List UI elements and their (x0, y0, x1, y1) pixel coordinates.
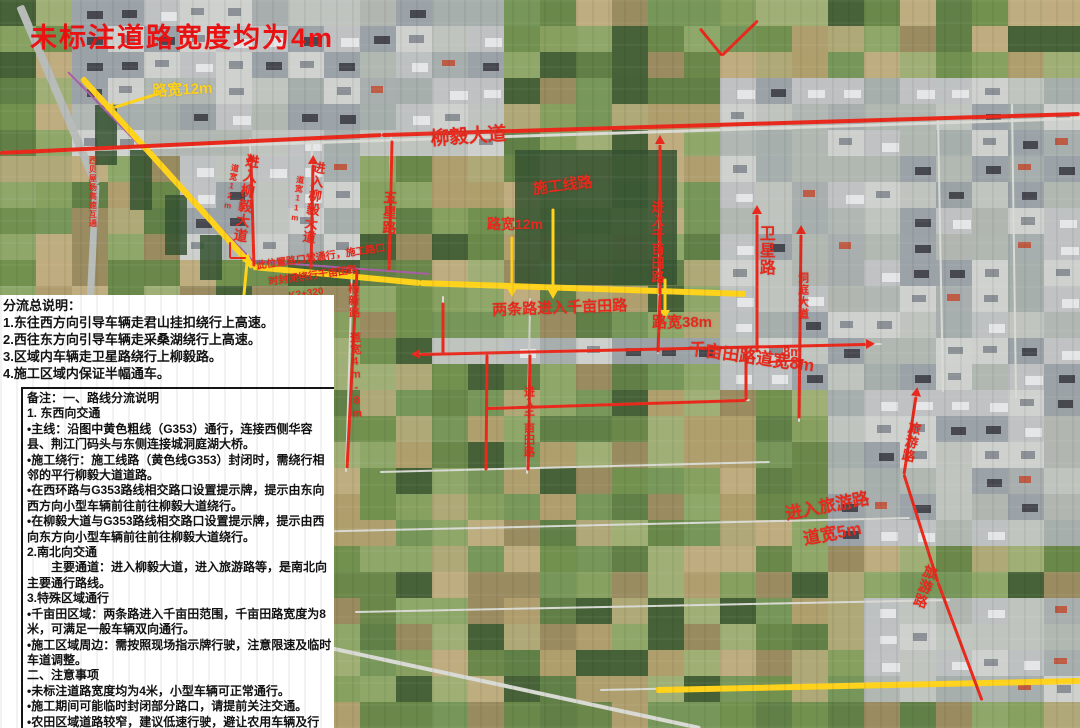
note-line: •未标注道路宽度均为4米，小型车辆可正常通行。 (27, 684, 334, 699)
notes-box: 备注：一、路线分流说明1. 东西向交通•主线：沿图中黄色粗线（G353）通行，连… (21, 387, 334, 728)
note-lines: 备注：一、路线分流说明1. 东西向交通•主线：沿图中黄色粗线（G353）通行，连… (27, 391, 334, 728)
summary-line: 4.施工区域内保证半幅通车。 (3, 365, 331, 382)
note-line: •千亩田区域：两条路进入千亩田范围，千亩田路宽度为8米，可满足一般车辆双向通行。 (27, 607, 334, 638)
road-width-12m-nw-label: 路宽12m (152, 81, 213, 100)
satellite-map: 路宽12m柳毅大道施工线路路宽12m进入柳毅大道道宽12m进入柳毅大道道宽11m… (0, 0, 1080, 728)
width-8m-label: 8m (783, 345, 802, 359)
note-line: 1. 东西向交通 (27, 406, 334, 421)
road-width-38m-label: 路宽38m (652, 315, 712, 331)
junction-note-line1: 此位置路口常通行，施工路口 (256, 244, 386, 272)
wuxing-road-label: 五星路 (381, 190, 397, 235)
summary-heading: 分流总说明： (3, 297, 331, 314)
road-width-12m-small-label: 道宽12m (222, 163, 239, 212)
interchange-label: 西贝屋场高速互通 (88, 156, 96, 228)
note-line: •在柳毅大道与G353路线相交路口设置提示牌，提示由西向东方向小型车辆前往前往柳… (27, 514, 334, 545)
note-line: 主要通道：进入柳毅大道，进入旅游路等，是南北向主要通行路线。 (27, 560, 334, 591)
road-width-12m-center-label: 路宽12m (487, 217, 543, 232)
yangxin-road-label: 杨新路 道宽4m-8m (346, 283, 362, 421)
note-line: •施工绕行：施工线路（黄色线G353）封闭时，需绕行相邻的平行柳毅大道道路。 (27, 453, 334, 484)
liuyi-avenue-label: 柳毅大道 (430, 125, 507, 150)
enter-liuyi-avenue-label-2: 进入柳毅大道 (300, 160, 325, 245)
note-line: 备注：一、路线分流说明 (27, 391, 334, 406)
construction-route-label: 施工线路 (532, 175, 593, 198)
enter-qianmutian-label-1: 进入千亩田路 (650, 200, 664, 284)
lvyou-road-label-1: 旅游路 (899, 420, 921, 464)
summary-line: 1.东往西方向引导车辆走君山挂扣绕行上高速。 (3, 314, 331, 331)
enter-qianmutian-label-2: 进入千亩田路 (522, 386, 534, 458)
note-line: 二、注意事项 (27, 668, 334, 683)
road-width-11m-small-label: 道宽11m (289, 175, 304, 224)
lvyou-width-5m-label: 道宽5m (802, 520, 863, 549)
note-line: •施工区域周边：需按照现场指示牌行驶，注意限速及临时车道调整。 (27, 638, 334, 669)
note-line: •在西环路与G353路线相交路口设置提示牌，提示由东向西方向小型车辆前往前往柳毅… (27, 483, 334, 514)
note-line: 2.南北向交通 (27, 545, 334, 560)
dongting-avenue-label: 洞庭大道 (796, 272, 808, 320)
notes-panel: 分流总说明： 1.东往西方向引导车辆走君山挂扣绕行上高速。2.西往东方向引导车辆… (0, 295, 334, 728)
note-line: •农田区域道路较窄，建议低速行驶，避让农用车辆及行人。 (27, 715, 334, 728)
summary-line: 3.区域内车辆走卫星路绕行上柳毅路。 (3, 348, 331, 365)
two-roads-enter-qianmutian-label: 两条路进入千亩田路 (492, 298, 627, 318)
note-line: 3.特殊区域通行 (27, 591, 334, 606)
lvyou-road-label-2: 旅游路 (911, 563, 939, 610)
summary-lines: 1.东往西方向引导车辆走君山挂扣绕行上高速。2.西往东方向引导车辆走采桑湖绕行上… (3, 314, 331, 382)
weixing-road-label: 卫星路 (756, 225, 773, 276)
note-line: •施工期间可能临时封闭部分路口，请提前关注交通。 (27, 699, 334, 714)
note-line: •主线：沿图中黄色粗线（G353）通行，连接西侧华容县、荆江门码头与东侧连接城洞… (27, 422, 334, 453)
map-title: 未标注道路宽度均为4m (30, 16, 334, 55)
summary-line: 2.西往东方向引导车辆走采桑湖绕行上高速。 (3, 331, 331, 348)
